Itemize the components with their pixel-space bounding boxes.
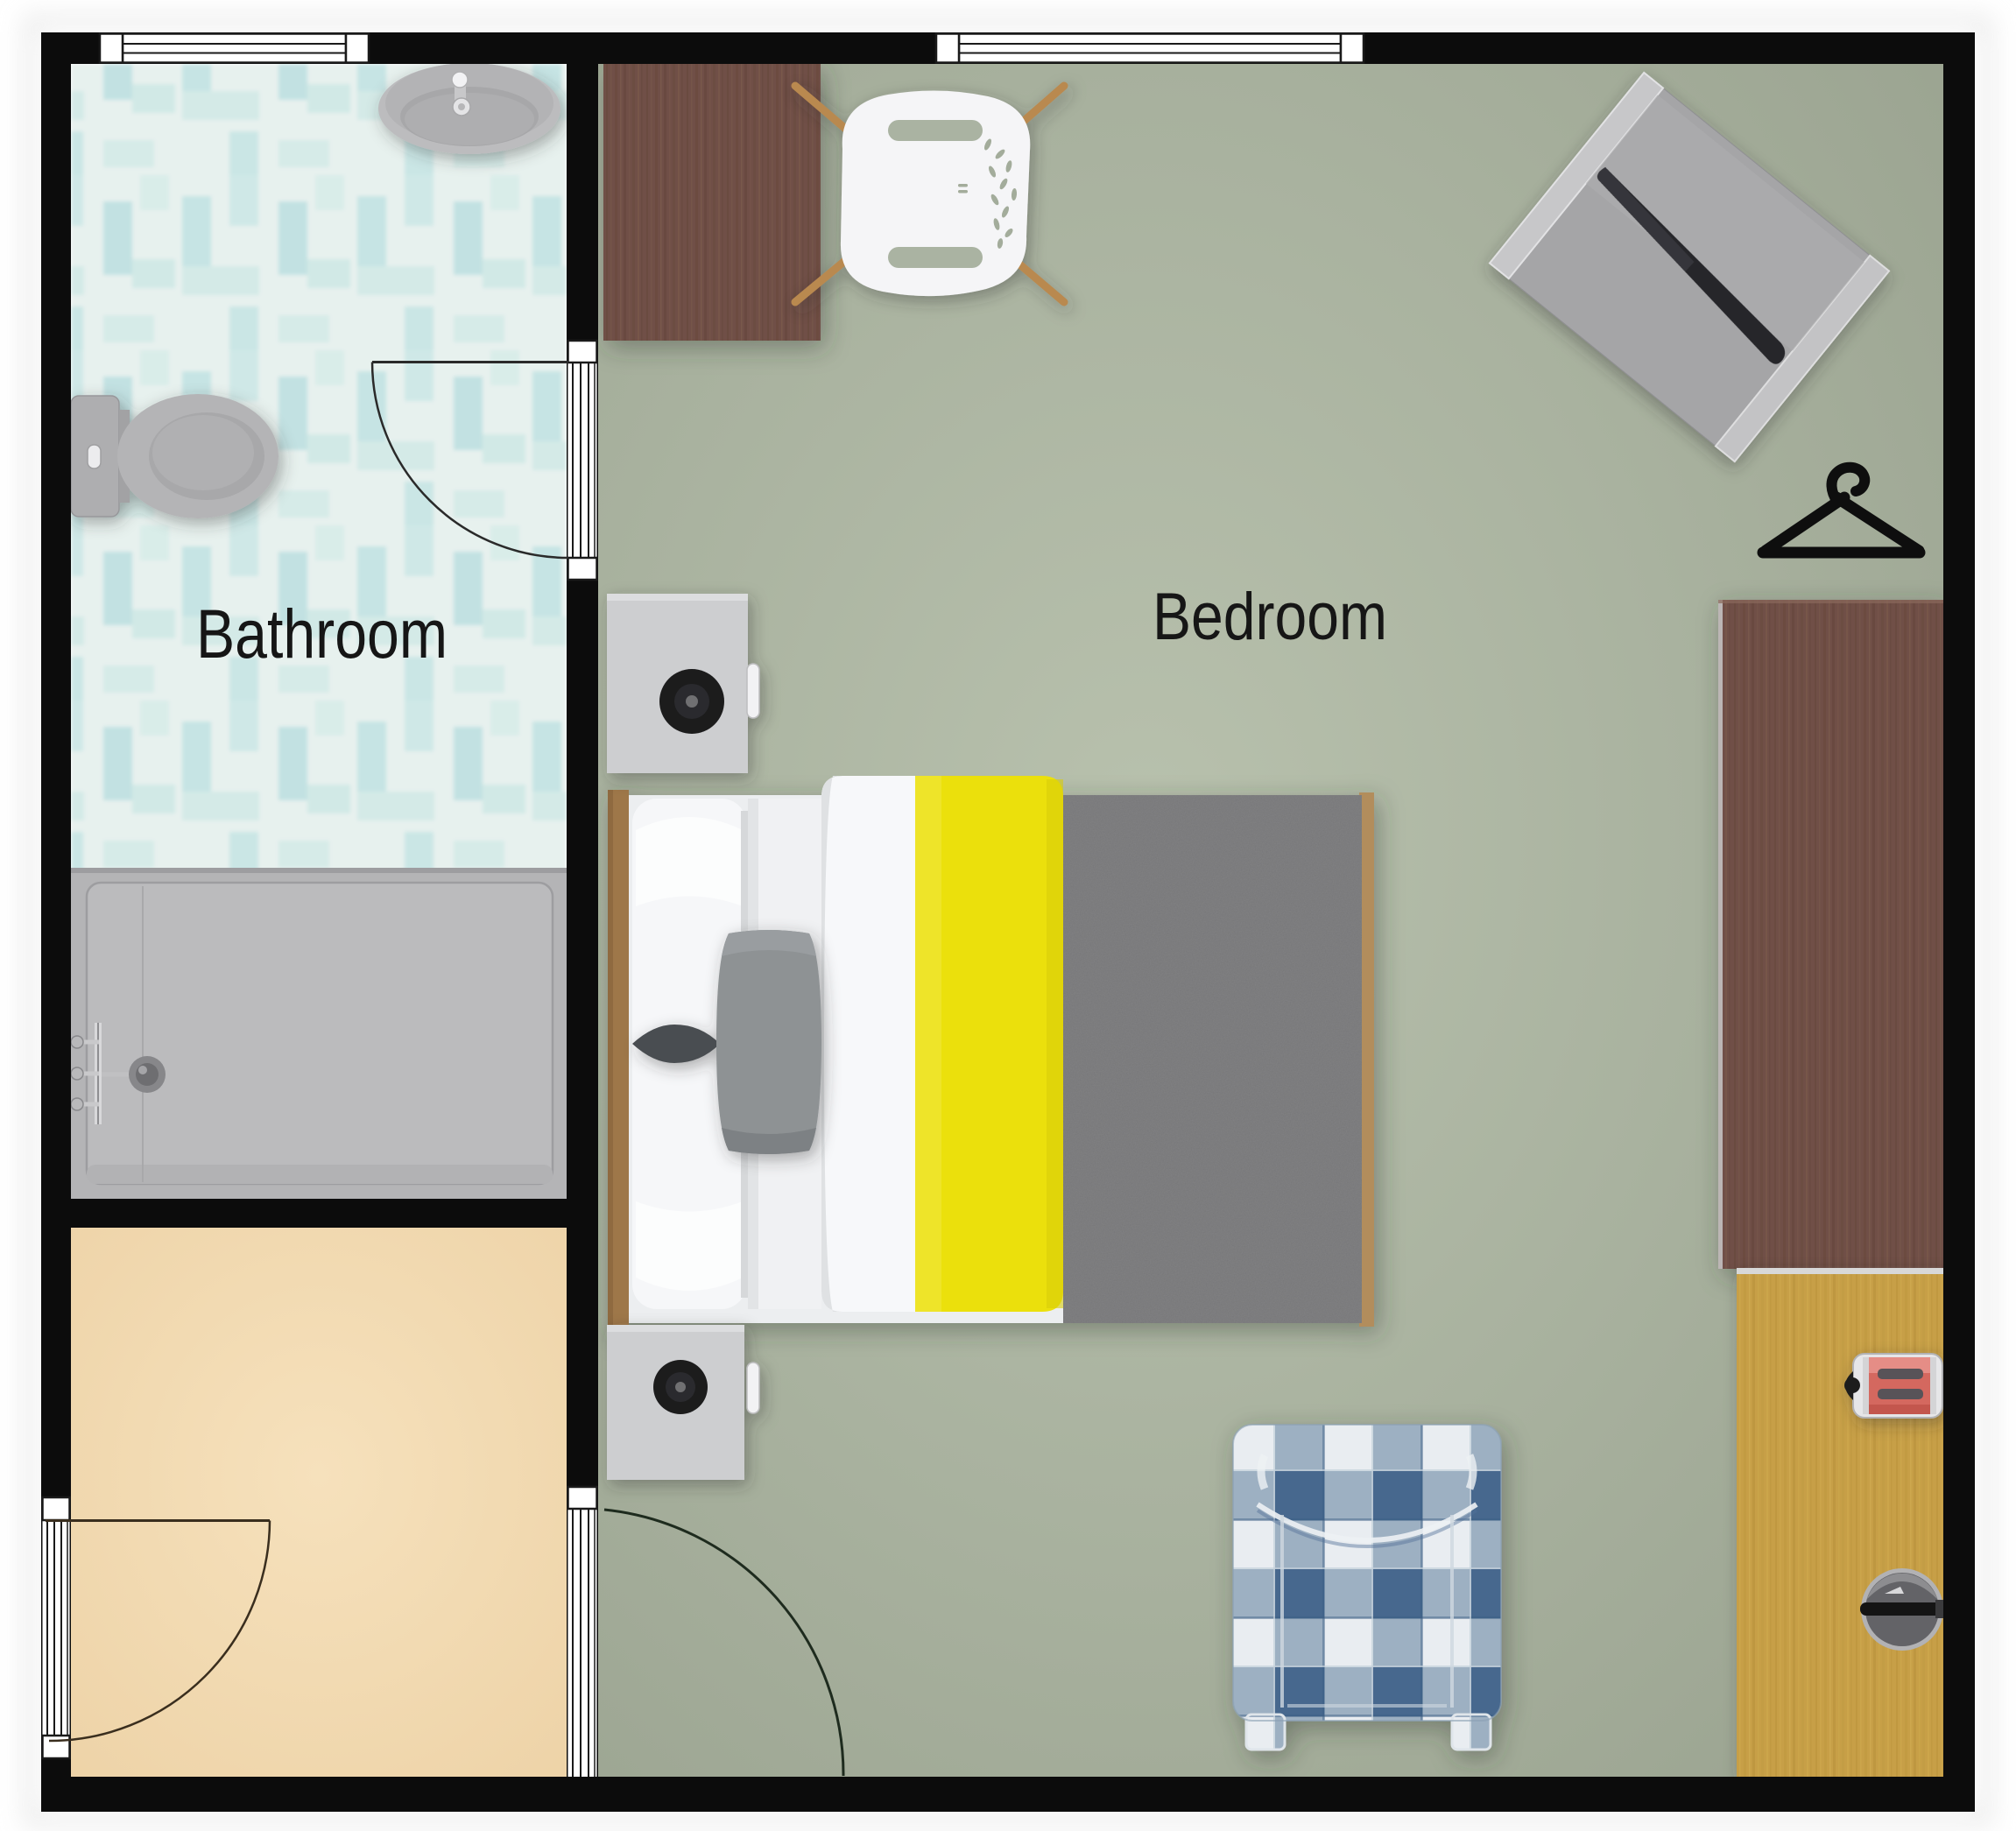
svg-text:Bathroom: Bathroom [196, 595, 448, 673]
svg-text:Bedroom: Bedroom [1153, 580, 1387, 654]
